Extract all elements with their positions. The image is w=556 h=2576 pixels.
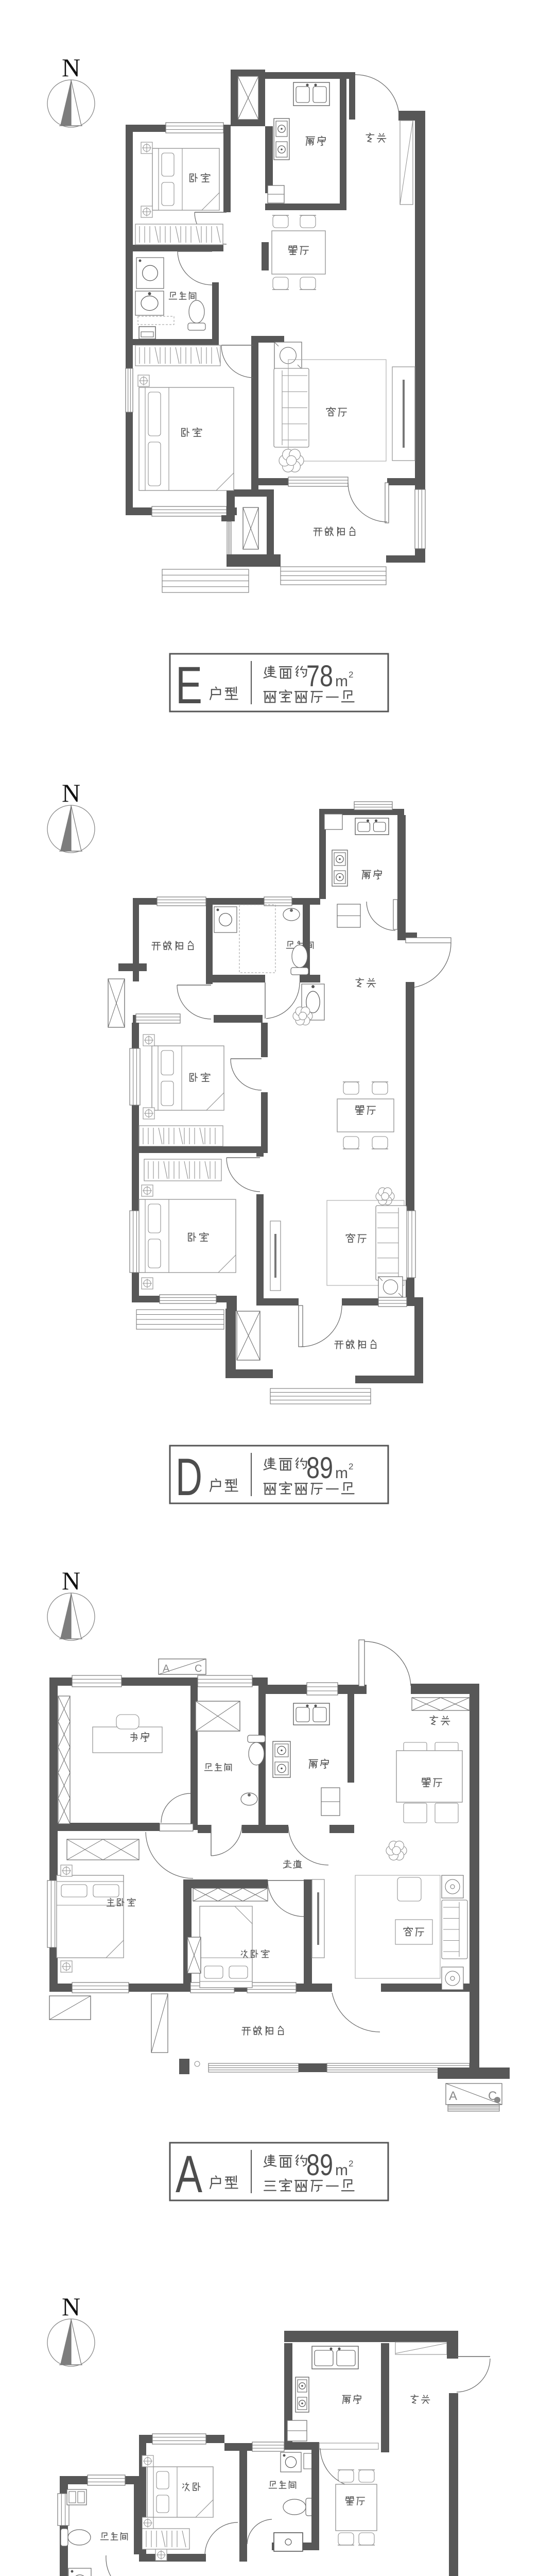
svg-text:D: D	[176, 1448, 202, 1506]
svg-text:A: A	[449, 2089, 457, 2103]
svg-text:m: m	[335, 1465, 348, 1482]
svg-text:N: N	[62, 778, 80, 807]
svg-text:E: E	[176, 656, 202, 715]
svg-text:A: A	[176, 2145, 202, 2204]
svg-text:2: 2	[349, 670, 353, 680]
svg-text:A: A	[163, 1663, 170, 1674]
svg-text:C: C	[195, 1663, 202, 1674]
svg-text:89: 89	[306, 2148, 333, 2182]
svg-text:N: N	[62, 53, 80, 82]
svg-text:2: 2	[349, 2159, 353, 2168]
svg-text:78: 78	[306, 659, 333, 693]
svg-text:N: N	[62, 2292, 80, 2321]
svg-text:N: N	[62, 1566, 80, 1595]
svg-text:89: 89	[306, 1451, 333, 1485]
svg-text:m: m	[335, 673, 348, 690]
svg-text:m: m	[335, 2162, 348, 2179]
svg-text:2: 2	[349, 1462, 353, 1471]
